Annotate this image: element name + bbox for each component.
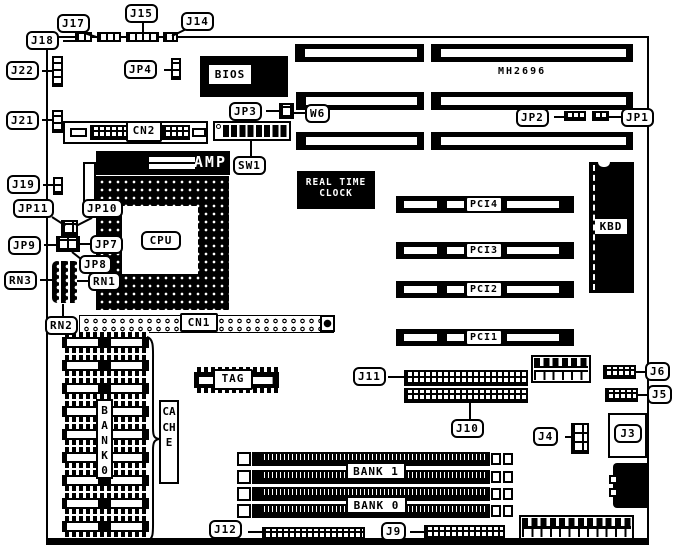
cn2-tab-right xyxy=(192,128,206,137)
power-connector-bottom xyxy=(519,515,634,540)
pointer-w6 xyxy=(292,112,306,114)
pci-slot-4: PCI4 xyxy=(396,196,574,213)
jumper-jp7-jp8-jp9 xyxy=(56,236,80,252)
amp-stripe xyxy=(149,157,195,162)
cache-chip xyxy=(62,378,149,399)
amp-stripe2 xyxy=(149,164,195,169)
connector-j10 xyxy=(404,388,528,403)
callout-j10: J10 xyxy=(451,419,484,438)
bank0-stack-label: BANK0 xyxy=(96,399,113,479)
motherboard-diagram: BIOS CN2 MH2696 AMP CPU REAL TIME CLOCK xyxy=(0,0,679,551)
pointer-j21 xyxy=(42,119,53,121)
j3-label: J3 xyxy=(614,424,642,443)
rtc-label-line2: CLOCK xyxy=(297,188,375,199)
callout-jp4: JP4 xyxy=(124,60,157,79)
isa-slot-1-right xyxy=(431,44,633,62)
rtc-chip: REAL TIME CLOCK xyxy=(297,171,375,209)
callout-jp7: JP7 xyxy=(90,235,123,254)
pointer-j12 xyxy=(248,531,263,533)
pci-slot-3: PCI3 xyxy=(396,242,574,259)
jumper-jp2 xyxy=(564,111,586,121)
connector-j6 xyxy=(603,365,636,379)
rtc-label-line1: REAL TIME xyxy=(297,177,375,188)
callout-w6: W6 xyxy=(305,104,330,123)
bios-label: BIOS xyxy=(209,65,251,84)
isa-slot-3-left xyxy=(296,132,424,150)
pointer-j18 xyxy=(63,40,77,42)
pointer-j22 xyxy=(42,70,53,72)
connector-j17 xyxy=(97,32,121,42)
bank1-label: BANK 1 xyxy=(346,462,406,480)
board-model: MH2696 xyxy=(498,66,578,80)
connector-j22 xyxy=(52,56,63,87)
sw1-switches xyxy=(223,125,289,137)
pointer-j10 xyxy=(469,402,471,420)
callout-j11: J11 xyxy=(353,367,386,386)
kbd-chip: KBD xyxy=(589,162,634,293)
keyboard-connector xyxy=(613,463,648,508)
cn2-tab-left xyxy=(70,128,87,137)
isa-slot-1-left xyxy=(295,44,424,62)
connector-j4 xyxy=(571,423,589,454)
callout-jp10: JP10 xyxy=(82,199,123,218)
sw1-dip-switch xyxy=(213,121,291,141)
callout-j17: J17 xyxy=(57,14,90,33)
cache-chip xyxy=(62,355,149,376)
pointer-j9 xyxy=(410,531,425,533)
bank0-label: BANK 0 xyxy=(346,496,407,514)
connector-j11 xyxy=(404,370,528,386)
callout-rn2: RN2 xyxy=(45,316,78,335)
power-bottom-caps xyxy=(522,518,631,526)
callout-j9: J9 xyxy=(381,522,406,541)
jumper-jp1 xyxy=(592,111,609,121)
pointer-jp4 xyxy=(164,69,172,71)
connector-j5 xyxy=(605,388,638,402)
keyboard-connector-notch2 xyxy=(609,488,618,497)
cn1-end-pin xyxy=(320,315,335,332)
simm2-latch-right xyxy=(491,471,501,483)
callout-j5: J5 xyxy=(647,385,672,404)
regulator xyxy=(83,162,96,203)
connector-j15 xyxy=(126,32,159,42)
callout-rn3: RN3 xyxy=(4,271,37,290)
pointer-jp3 xyxy=(266,110,280,112)
jumper-jp3-w6 xyxy=(279,103,294,119)
pointer-j11 xyxy=(388,376,405,378)
callout-j6: J6 xyxy=(645,362,670,381)
simm3-latch-right2 xyxy=(503,488,513,500)
callout-j21: J21 xyxy=(6,111,39,130)
callout-jp1: JP1 xyxy=(621,108,654,127)
rn-resistor-pack xyxy=(52,261,79,303)
simm4-latch-left xyxy=(237,504,251,518)
pci-slot-1: PCI1 xyxy=(396,329,574,346)
callout-jp3: JP3 xyxy=(229,102,262,121)
pointer-j19 xyxy=(43,184,54,186)
pci4-label: PCI4 xyxy=(465,196,503,213)
power-bottom-slots xyxy=(522,527,631,537)
connector-j21 xyxy=(52,110,63,133)
callout-jp2: JP2 xyxy=(516,108,549,127)
simm3-latch-left xyxy=(237,487,251,501)
callout-j12: J12 xyxy=(209,520,242,539)
cn2-pins-right xyxy=(162,125,190,140)
simm1-latch-right2 xyxy=(503,453,513,465)
cpu-label: CPU xyxy=(141,231,181,250)
pointer-j4 xyxy=(565,436,573,438)
amp-socket-bar: AMP xyxy=(96,151,230,175)
cn1-label: CN1 xyxy=(180,313,218,332)
callout-j22: J22 xyxy=(6,61,39,80)
simm1-latch-right xyxy=(491,453,501,465)
sw1-pin1-dot xyxy=(216,124,221,129)
simm2-latch-right2 xyxy=(503,471,513,483)
power-top-slots xyxy=(534,370,588,380)
cache-chip xyxy=(62,516,149,537)
simm2-latch-left xyxy=(237,470,251,484)
cache-label: CACHE xyxy=(159,400,179,484)
pointer-jp9 xyxy=(44,244,57,246)
pointer-jp1 xyxy=(608,116,622,118)
kbd-label: KBD xyxy=(595,219,627,234)
pointer-sw1 xyxy=(250,140,252,157)
board-edge-left xyxy=(46,36,48,542)
simm4-latch-right2 xyxy=(503,505,513,517)
tag-label: TAG xyxy=(213,369,253,390)
power-top-caps xyxy=(534,358,588,366)
simm4-latch-right xyxy=(491,505,501,517)
power-connector-top xyxy=(531,355,591,383)
pci3-label: PCI3 xyxy=(465,242,503,259)
callout-sw1: SW1 xyxy=(233,156,266,175)
simm3-latch-right xyxy=(491,488,501,500)
kbd-notch xyxy=(598,162,610,167)
pointer-rn3 xyxy=(40,279,53,281)
callout-rn1: RN1 xyxy=(88,272,121,291)
callout-j14: J14 xyxy=(181,12,214,31)
callout-jp9: JP9 xyxy=(8,236,41,255)
pci2-label: PCI2 xyxy=(465,281,503,298)
pointer-jp10 xyxy=(76,217,93,227)
keyboard-connector-notch1 xyxy=(609,475,618,484)
callout-j4: J4 xyxy=(533,427,558,446)
connector-j19 xyxy=(53,177,63,195)
pci-slot-2: PCI2 xyxy=(396,281,574,298)
callout-jp11: JP11 xyxy=(13,199,54,218)
isa-slot-3-right xyxy=(431,132,633,150)
amp-label: AMP xyxy=(194,153,227,171)
connector-jp4 xyxy=(171,58,181,80)
cache-chip xyxy=(62,332,149,353)
pointer-jp2 xyxy=(554,116,565,118)
cn2-label: CN2 xyxy=(126,121,162,142)
pci1-label: PCI1 xyxy=(465,329,503,346)
callout-j15: J15 xyxy=(125,4,158,23)
connector-j9 xyxy=(424,525,505,540)
callout-j18: J18 xyxy=(26,31,59,50)
connector-j12 xyxy=(262,527,365,541)
cache-chip xyxy=(62,493,149,514)
simm1-latch-left xyxy=(237,452,251,466)
callout-j19: J19 xyxy=(7,175,40,194)
